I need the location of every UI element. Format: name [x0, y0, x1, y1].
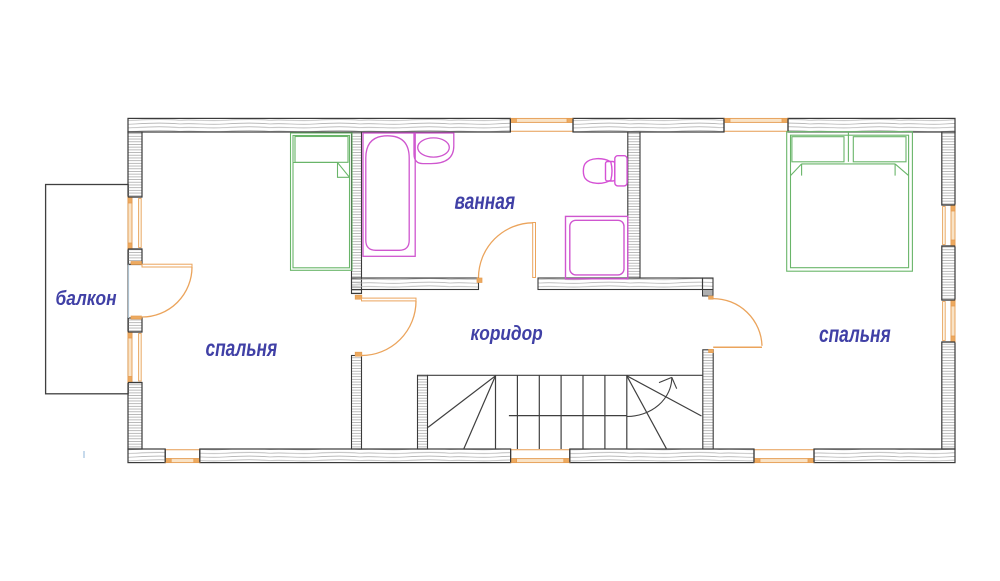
- svg-text:спальня: спальня: [206, 337, 278, 362]
- svg-text:балкон: балкон: [56, 288, 117, 311]
- svg-text:коридор: коридор: [471, 322, 543, 344]
- svg-text:ванная: ванная: [455, 190, 516, 215]
- svg-text:спальня: спальня: [819, 323, 891, 348]
